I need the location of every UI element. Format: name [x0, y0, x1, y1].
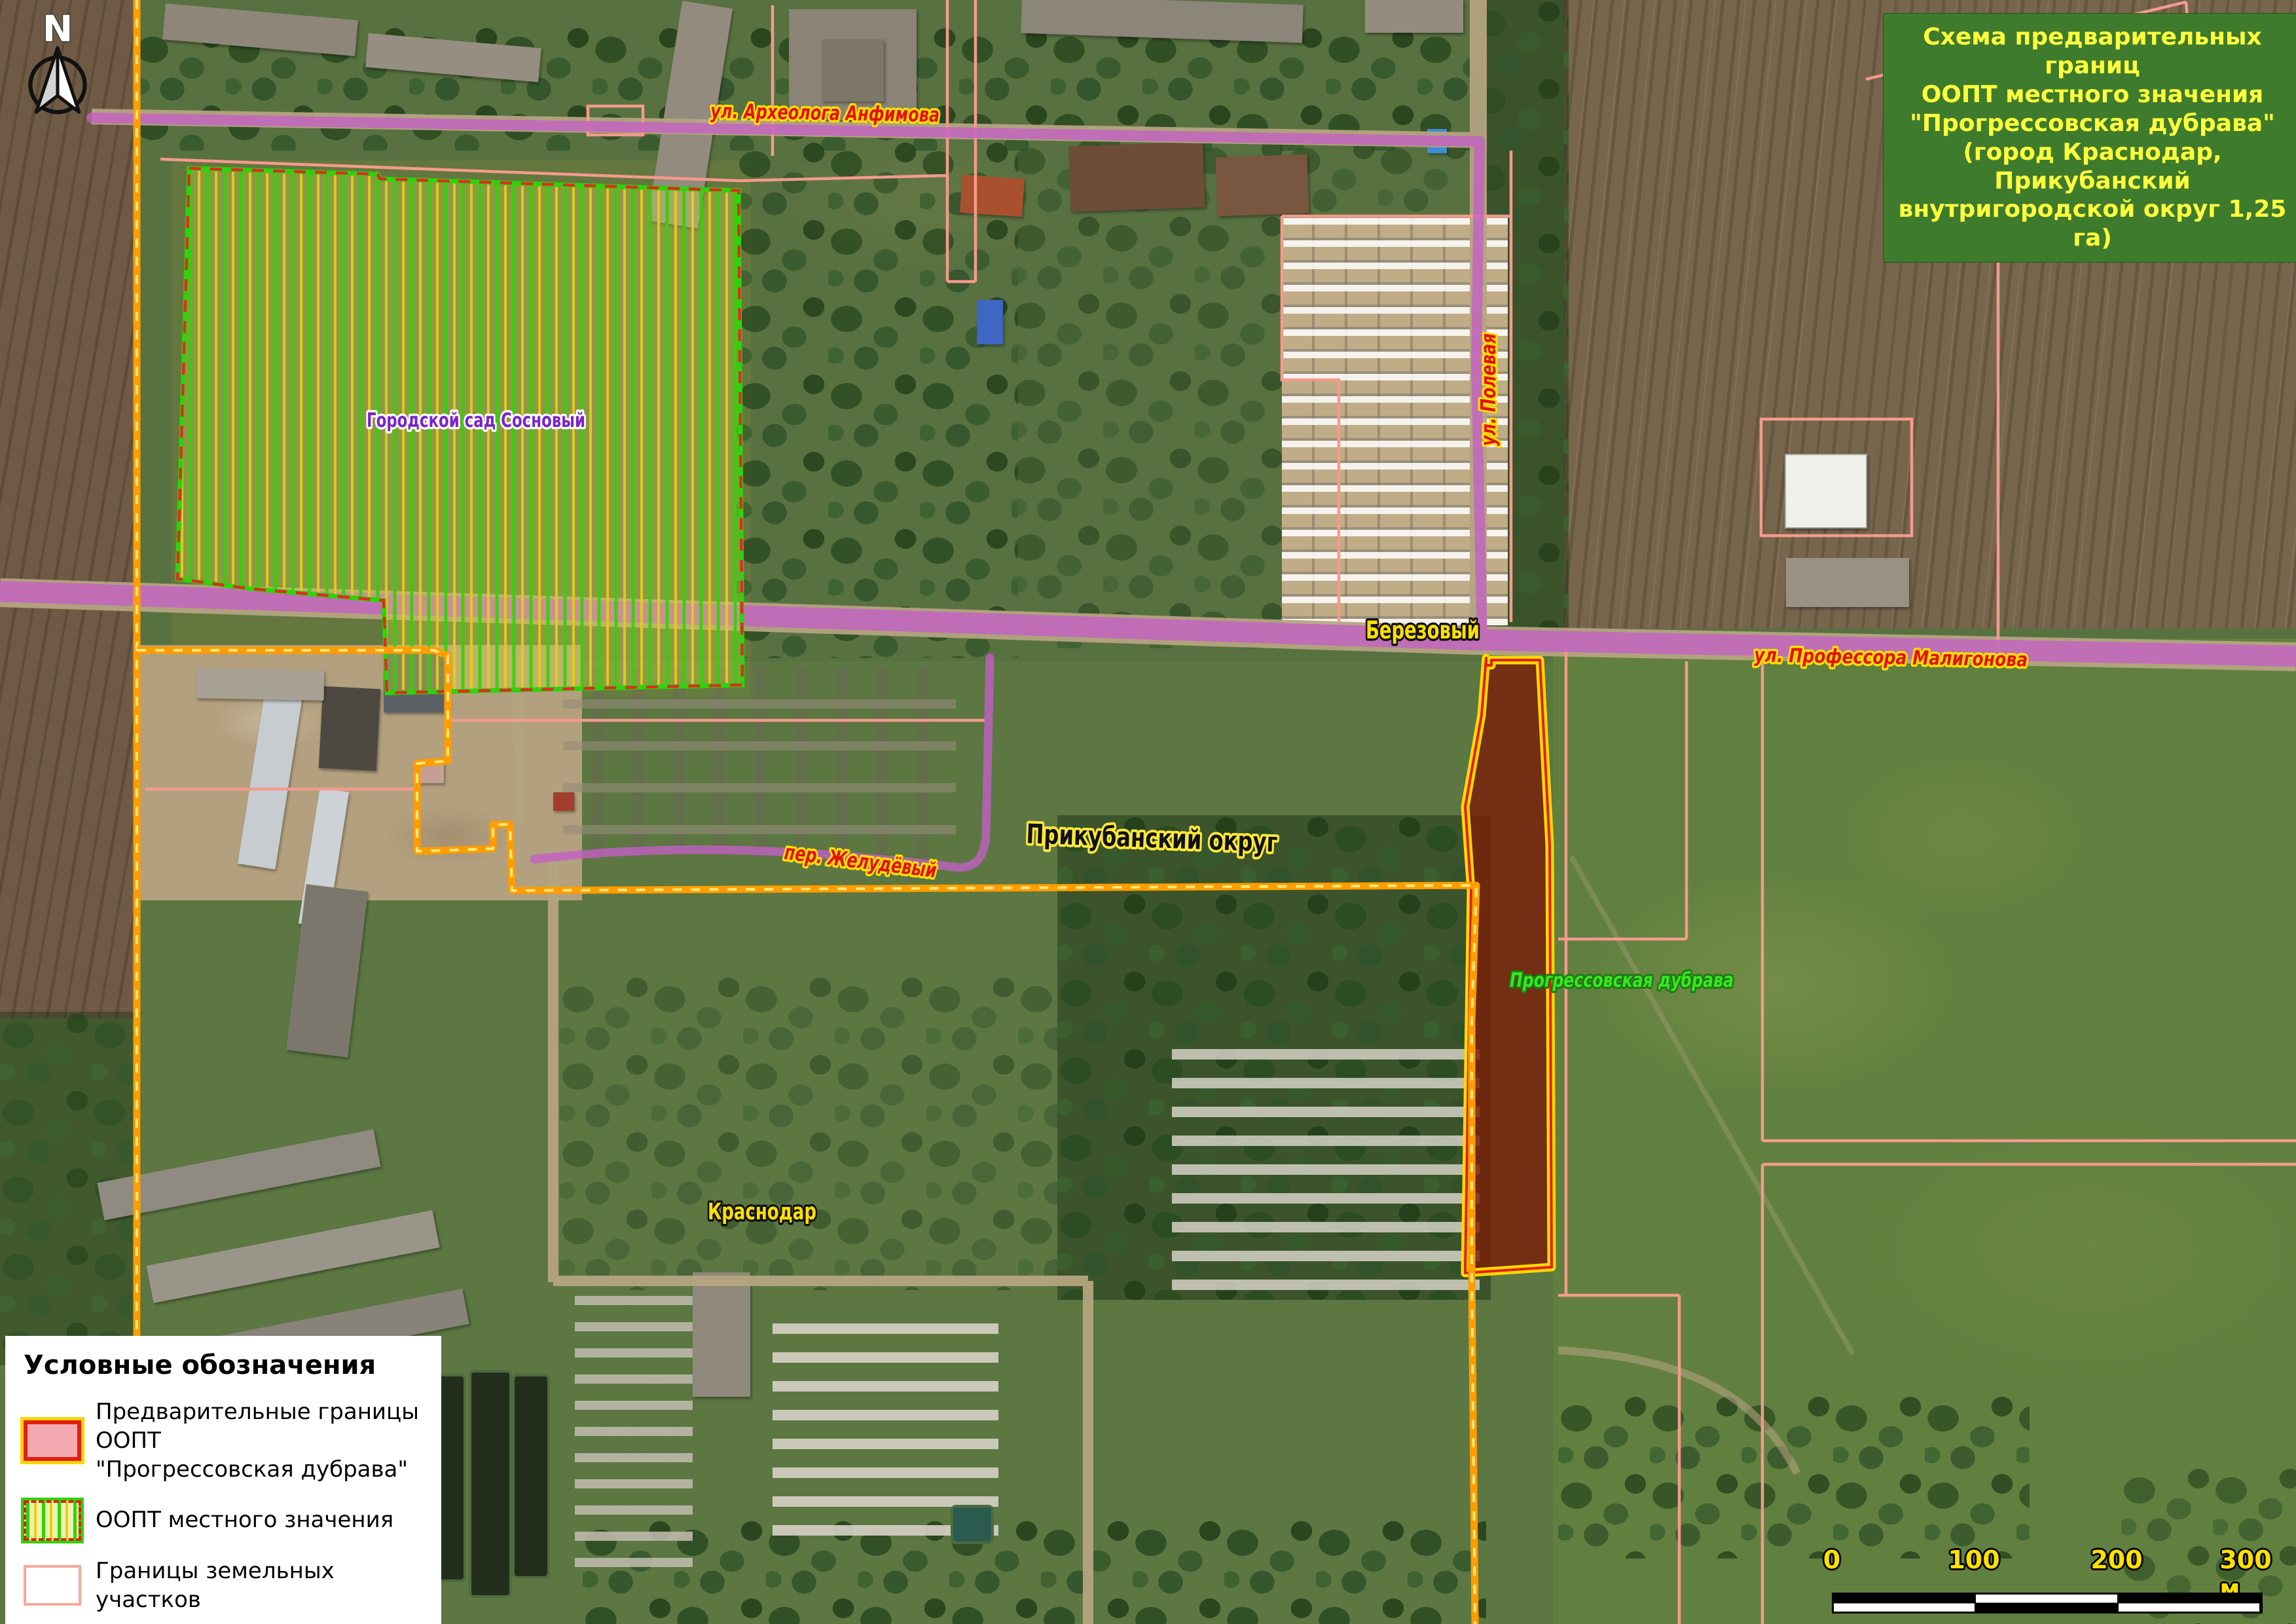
- street-label-maligonova: ул. Профессора Малигонова: [1754, 644, 2028, 671]
- legend-label-line: "Прогрессовская дубрава": [96, 1455, 423, 1484]
- scale-tick-0: 0: [1823, 1545, 1840, 1574]
- district-label-prikubansky: Прикубанский округ: [1026, 818, 1278, 858]
- city-label-krasnodar: Краснодар: [708, 1199, 816, 1225]
- legend-panel: Условные обозначения Предварительные гра…: [5, 1336, 441, 1624]
- scale-segment: [1834, 1595, 1976, 1612]
- settlement-label-berezovy: Березовый: [1366, 616, 1480, 644]
- street-maligonova-line: [0, 591, 2296, 656]
- street-label-anfimova: ул. Археолога Анфимова: [710, 100, 940, 127]
- scale-tick-100: 100: [1948, 1545, 1999, 1574]
- oopt-preliminary-polygon: [1465, 658, 1552, 1273]
- street-label-polevaya: ул. Полевая: [1477, 333, 1501, 446]
- lane-label-zheludevy: пер. Желудёвый: [783, 840, 938, 883]
- scale-bar-graphic: [1832, 1593, 2263, 1614]
- legend-label-line: Предварительные границы ООПТ: [96, 1397, 423, 1455]
- compass-needle-right: [58, 48, 79, 112]
- scale-tick-200: 200: [2090, 1545, 2142, 1574]
- scale-bar: 0 100 200 300 м: [1827, 1545, 2269, 1617]
- compass-needle-left: [36, 48, 58, 112]
- legend-item-label: Границы земельных участков: [96, 1557, 423, 1614]
- scale-segment: [2119, 1595, 2261, 1612]
- map-title: Схема предварительных границ ООПТ местно…: [1883, 13, 2296, 263]
- north-arrow-label: N: [43, 9, 73, 50]
- legend-title: Условные обозначения: [24, 1350, 423, 1380]
- local-oopt-swatch: [24, 1500, 81, 1541]
- legend-item-preliminary-boundary: Предварительные границы ООПТ "Прогрессов…: [24, 1397, 423, 1485]
- scale-segment: [1976, 1595, 2118, 1612]
- legend-item-label: ООПТ местного значения: [96, 1505, 393, 1534]
- park-label-sosnovy: Городской сад Сосновый: [367, 409, 585, 432]
- preliminary-boundary-swatch: [24, 1420, 81, 1461]
- parcel-boundary-swatch: [24, 1565, 81, 1606]
- map-canvas: ул. Археолога Анфимова ул. Полевая ул. П…: [0, 0, 2296, 1624]
- legend-item-label: Предварительные границы ООПТ "Прогрессов…: [96, 1397, 423, 1485]
- oopt-label-progressovskaya: Прогрессовская дубрава: [1510, 969, 1734, 992]
- legend-item-local-oopt: ООПТ местного значения: [24, 1500, 423, 1541]
- north-arrow: N: [12, 7, 103, 118]
- legend-item-parcel-boundaries: Границы земельных участков: [24, 1557, 423, 1614]
